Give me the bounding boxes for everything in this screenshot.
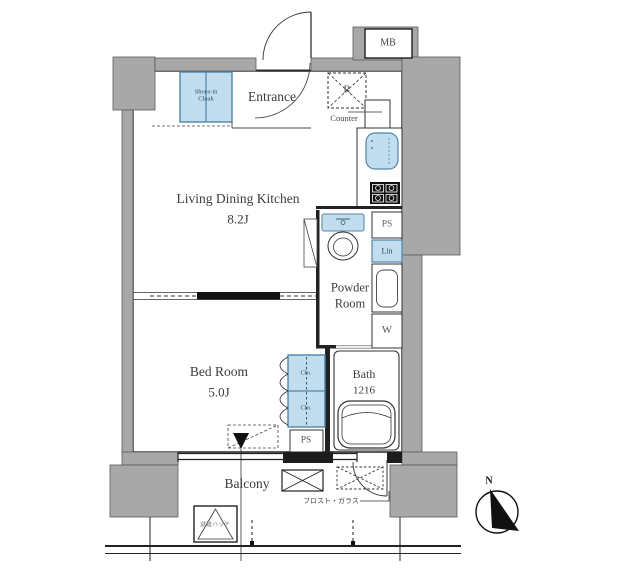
shoes-closet-label: Shoes-in Cloak — [195, 89, 218, 104]
pillar-bottom-left — [110, 465, 178, 517]
balcony-railing — [105, 517, 461, 561]
shoes-closet-label-line1: Shoes-in — [195, 89, 218, 96]
wall-left — [122, 110, 133, 452]
kitchen-sink — [366, 133, 398, 169]
washer-label: W — [382, 325, 392, 337]
frosted-glass-screen — [337, 467, 383, 489]
ldk-size-label: 8.2J — [227, 213, 248, 228]
powder-room-door — [304, 219, 317, 267]
wall-chunk-bath-corner — [387, 452, 402, 463]
compass-needle — [490, 489, 519, 531]
bedroom-window — [178, 452, 285, 462]
compass-north-label: N — [485, 475, 492, 487]
powder-room-label-line2: Room — [331, 296, 369, 312]
powder-room-label-line1: Powder — [331, 280, 369, 296]
stove — [370, 182, 400, 204]
bath-window — [333, 452, 357, 462]
bath-label: Bath — [353, 368, 376, 382]
counter-label: Counter — [330, 114, 357, 124]
frosted-glass-label: フロスト・ガラス — [303, 497, 359, 505]
ldk-label: Living Dining Kitchen — [177, 191, 300, 207]
closet-lower-label: Clo. — [300, 404, 311, 411]
counter-box — [365, 100, 390, 128]
wall-right-lower — [402, 255, 422, 452]
wall-bottom-right-segment — [402, 452, 457, 465]
balcony-label: Balcony — [225, 476, 270, 492]
floor-plan-drawing — [0, 0, 640, 569]
floor-plan: MB Shoes-in Cloak Entrance R Counter Liv… — [0, 0, 640, 569]
entrance-door-swing-arc — [263, 12, 311, 60]
pillar-bottom-right — [390, 465, 457, 517]
powder-room-label: Powder Room — [331, 280, 369, 311]
pipe-space-top-label: PS — [382, 220, 393, 231]
compass — [476, 489, 519, 533]
bath-size-label: 1216 — [353, 385, 375, 398]
bedroom-size-label: 5.0J — [208, 386, 229, 401]
closet-upper-label: Clo. — [300, 369, 311, 376]
ac-unit-space — [282, 470, 323, 491]
pillar-top-left — [113, 57, 155, 110]
pipe-space-bottom-label: PS — [301, 436, 312, 447]
partition-dot-left — [250, 541, 254, 545]
balcony-door — [353, 460, 387, 496]
wall-right-upper — [402, 57, 460, 255]
shoes-closet-label-line2: Cloak — [195, 96, 218, 103]
meter-box-label: MB — [380, 37, 396, 49]
wall-bottom-left-segment — [122, 452, 178, 465]
wall-top-left-segment — [155, 58, 256, 71]
bathtub — [338, 401, 395, 448]
partition-dot-right — [351, 541, 355, 545]
evacuation-hatch-label: 避難ハッチ — [200, 523, 230, 530]
entrance-label: Entrance — [248, 89, 296, 105]
bedroom-label: Bed Room — [190, 364, 248, 380]
linen-label: Lin — [381, 246, 392, 255]
refrigerator-label: R — [343, 84, 350, 97]
balcony-partition-marks — [252, 520, 353, 542]
wall-chunk-bedroom-bath — [283, 452, 333, 463]
vanity — [372, 264, 402, 312]
